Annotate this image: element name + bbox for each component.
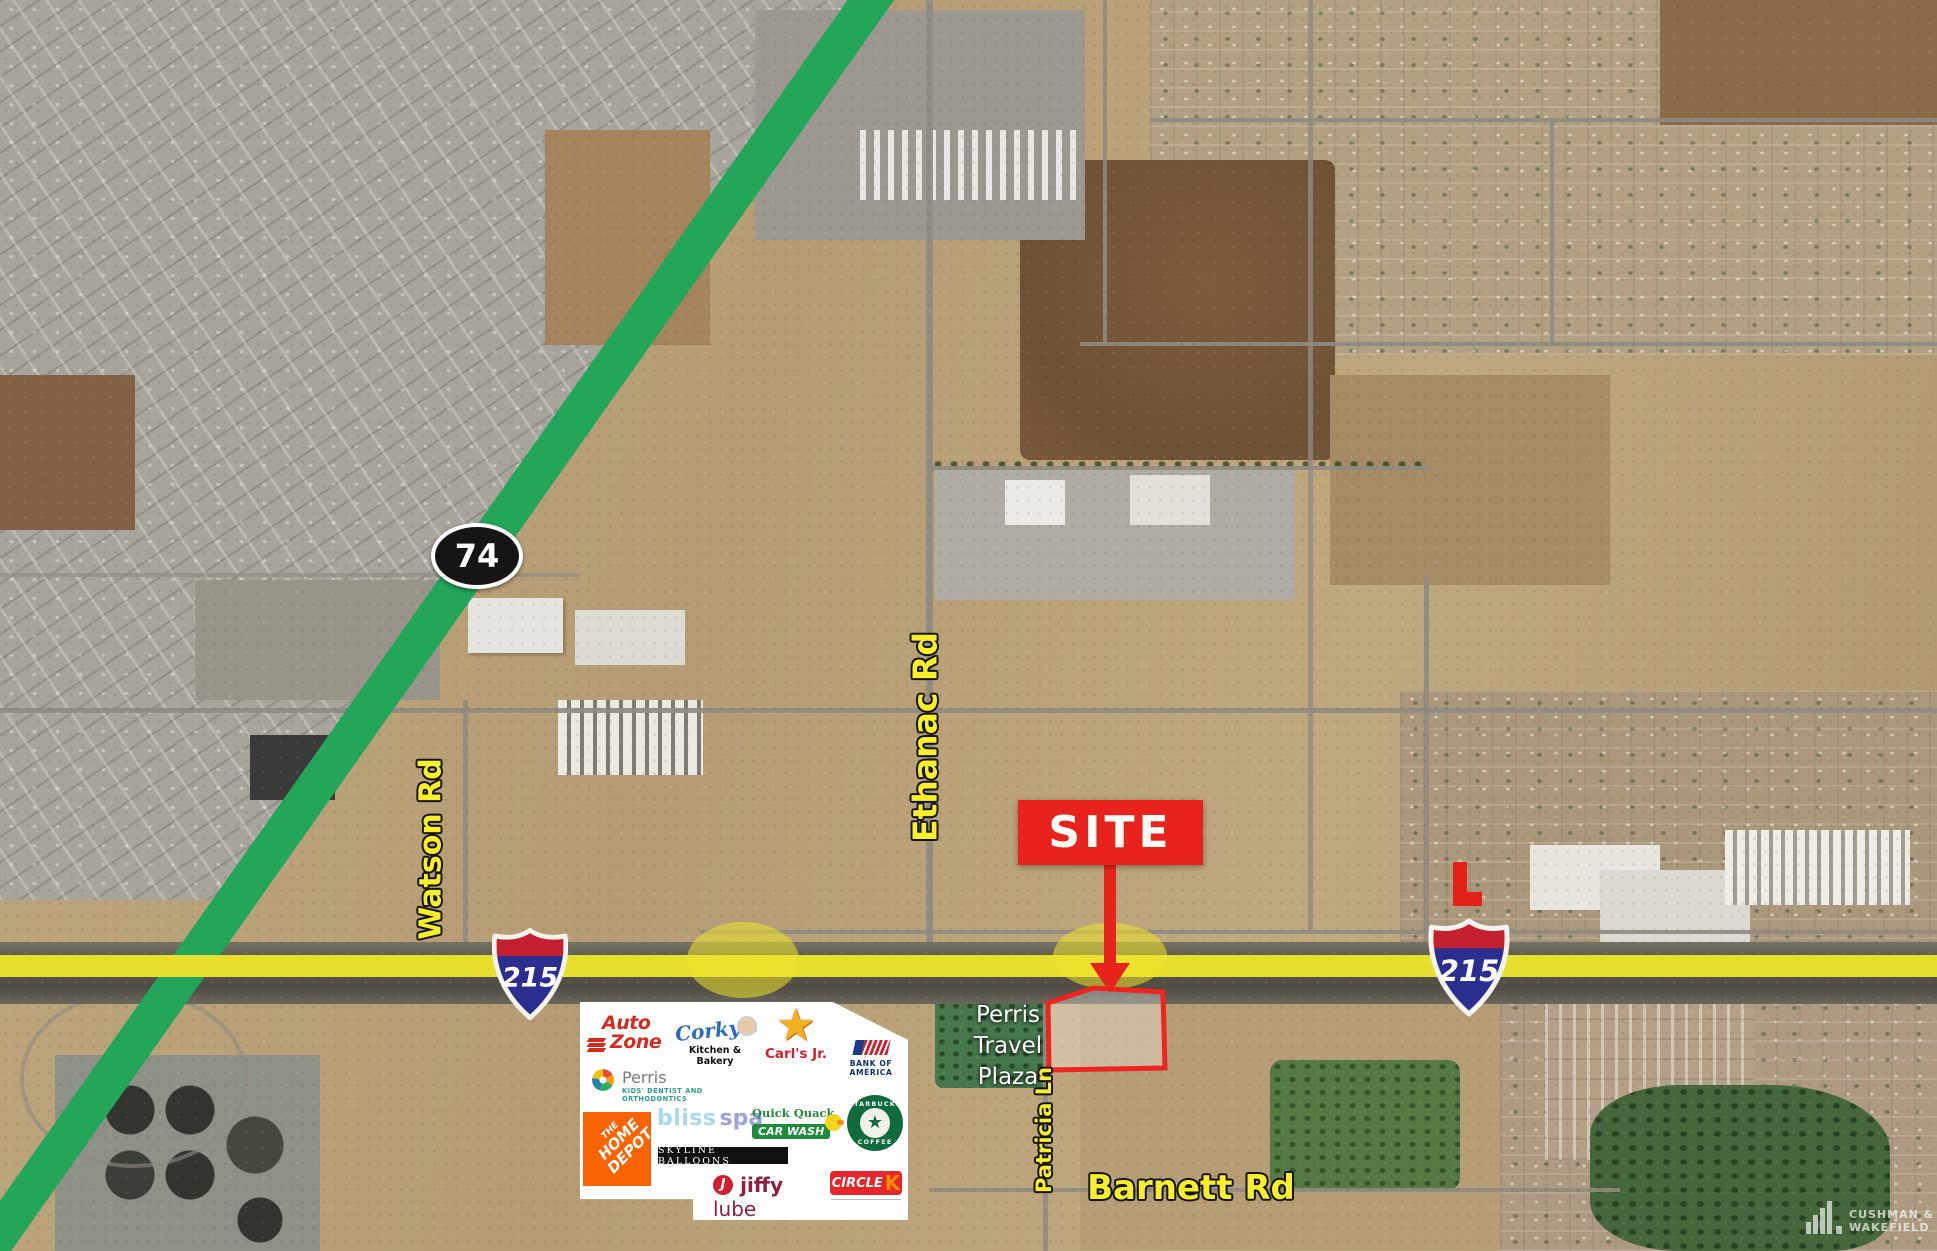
autozone-word2: Zone: [610, 1031, 661, 1053]
i215-number: 215: [492, 962, 568, 993]
site-callout-box: SITE: [1018, 800, 1203, 865]
carls-jr-logo: ★ Carl's Jr.: [763, 1004, 829, 1074]
i215-shield-right: 215: [1428, 918, 1510, 1017]
road-label-watson: Watson Rd: [414, 758, 449, 939]
road-label-barnett: Barnett Rd: [1087, 1168, 1295, 1208]
bliss-spa-logo: blissspa: [657, 1106, 743, 1132]
quick-quack-carwash-box: CAR WASH: [752, 1124, 830, 1139]
lube-word: lube: [713, 1197, 756, 1221]
skyline-balloons-name: SKYLINE BALLOONS: [658, 1145, 788, 1167]
autozone-stripes-icon: [588, 1036, 605, 1053]
jiffy-lube-j-icon: J: [713, 1175, 733, 1195]
cushman-wakefield-logo-icon: [1806, 1200, 1842, 1234]
road-label-ethanac: Ethanac Rd: [906, 632, 945, 842]
circle-word: CIRCLE: [832, 1176, 883, 1191]
jiffy-lube-logo: J jiffy lube: [713, 1173, 813, 1199]
carls-jr-star-icon: ★: [763, 1004, 829, 1048]
watermark-line1: CUSHMAN &: [1849, 1208, 1934, 1221]
plaza-label-line: Travel: [952, 1031, 1064, 1062]
bank-of-america-flag-icon: [852, 1040, 890, 1055]
plaza-label-line: Perris: [952, 1000, 1064, 1031]
quick-quack-duck-icon: [825, 1114, 842, 1131]
tenant-logo-panel: Auto Zone Corky's Kitchen & Bakery ★ Car…: [580, 1002, 908, 1220]
corkys-face-icon: [737, 1016, 757, 1036]
starbucks-logo: STARBUCKS ★ COFFEE: [847, 1095, 903, 1151]
watermark-line2: WAKEFIELD: [1849, 1221, 1934, 1234]
plaza-label-line: Plaza: [952, 1062, 1064, 1093]
starbucks-ring-bottom: COFFEE: [847, 1138, 903, 1146]
circle-k-underline: [831, 1197, 900, 1200]
perris-travel-plaza-label: Perris Travel Plaza: [952, 1000, 1064, 1093]
autozone-logo: Auto Zone: [588, 1012, 672, 1056]
perris-dental-logo: Perris KIDS' DENTIST AND ORTHODONTICS: [592, 1068, 762, 1098]
corkys-logo: Corky's Kitchen & Bakery: [675, 1018, 755, 1066]
site-callout-label: SITE: [1048, 807, 1172, 858]
bank-of-america-logo: BANK OF AMERICA: [836, 1040, 906, 1078]
carls-jr-name: Carl's Jr.: [763, 1046, 829, 1062]
i215-number: 215: [1428, 954, 1510, 988]
starbucks-ring-top: STARBUCKS: [847, 1100, 903, 1108]
jiffy-word: jiffy: [740, 1173, 783, 1197]
route-74-shield: 74: [431, 523, 523, 589]
quick-quack-logo: Quick Quack CAR WASH: [752, 1106, 842, 1142]
home-depot-logo: THE HOME DEPOT: [583, 1112, 651, 1186]
perris-dental-tagline: KIDS' DENTIST AND ORTHODONTICS: [622, 1087, 762, 1103]
i215-shield-left: 215: [492, 927, 568, 1021]
perris-dental-name: Perris: [622, 1068, 667, 1087]
circle-k-logo: CIRCLE K: [830, 1171, 902, 1200]
route-74-number: 74: [455, 537, 500, 575]
circle-k-letter: K: [885, 1171, 901, 1195]
aerial-site-map: 74 215 215 SITE Ethanac Rd Watson Rd Pat…: [0, 0, 1937, 1251]
cushman-wakefield-watermark: CUSHMAN & WAKEFIELD: [1806, 1200, 1934, 1234]
corkys-tagline: Kitchen & Bakery: [675, 1045, 755, 1067]
skyline-balloons-logo: SKYLINE BALLOONS: [658, 1147, 788, 1164]
perris-dental-pinwheel-icon: [592, 1069, 614, 1091]
starbucks-siren-icon: ★: [860, 1108, 890, 1138]
bliss-word: bliss: [657, 1106, 717, 1131]
bank-of-america-name: BANK OF AMERICA: [836, 1059, 906, 1077]
